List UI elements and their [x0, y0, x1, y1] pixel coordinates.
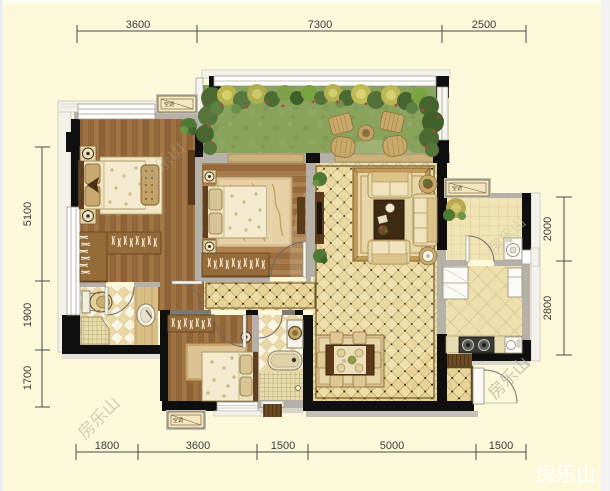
svg-text:1900: 1900 — [22, 303, 34, 327]
svg-text:空调: 空调 — [173, 417, 183, 424]
svg-text:空调: 空调 — [452, 185, 462, 192]
svg-text:2500: 2500 — [472, 19, 496, 31]
svg-text:2800: 2800 — [542, 296, 554, 320]
svg-text:1500: 1500 — [271, 440, 295, 452]
svg-text:1800: 1800 — [95, 440, 119, 452]
svg-text:3600: 3600 — [126, 19, 150, 31]
svg-text:2000: 2000 — [542, 217, 554, 241]
svg-text:1500: 1500 — [489, 440, 513, 452]
svg-text:1700: 1700 — [22, 366, 34, 390]
svg-text:空调: 空调 — [164, 101, 174, 108]
svg-text:7300: 7300 — [308, 19, 332, 31]
svg-text:5100: 5100 — [22, 202, 34, 226]
svg-text:3600: 3600 — [186, 440, 210, 452]
svg-text:房乐山: 房乐山 — [536, 463, 596, 486]
svg-text:5000: 5000 — [380, 440, 404, 452]
